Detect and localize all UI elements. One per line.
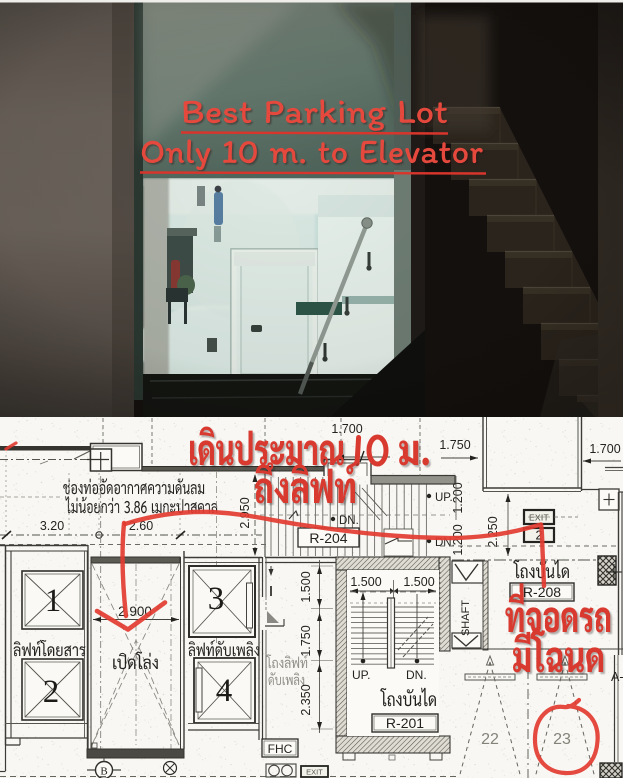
svg-text:R-201: R-201 bbox=[386, 715, 424, 731]
svg-text:A-: A- bbox=[611, 670, 623, 684]
svg-text:23: 23 bbox=[553, 731, 571, 748]
svg-text:1.700: 1.700 bbox=[331, 422, 362, 436]
svg-text:1.500: 1.500 bbox=[350, 575, 381, 589]
svg-text:1.700: 1.700 bbox=[589, 442, 620, 456]
svg-text:3.20: 3.20 bbox=[40, 519, 64, 533]
svg-text:22: 22 bbox=[481, 731, 499, 748]
svg-text:EXIT: EXIT bbox=[529, 513, 549, 523]
svg-text:DN.: DN. bbox=[339, 515, 359, 527]
svg-text:1.500: 1.500 bbox=[403, 575, 434, 589]
svg-text:SHAFT: SHAFT bbox=[460, 600, 472, 636]
svg-text:1.500: 1.500 bbox=[299, 571, 313, 602]
svg-text:1: 1 bbox=[45, 583, 62, 619]
svg-text:2.250: 2.250 bbox=[486, 516, 500, 547]
svg-text:3: 3 bbox=[208, 581, 225, 617]
svg-text:EXIT: EXIT bbox=[306, 768, 323, 777]
svg-text:2: 2 bbox=[43, 674, 60, 710]
svg-text:1.200: 1.200 bbox=[451, 482, 465, 513]
svg-text:B: B bbox=[100, 766, 107, 778]
svg-text:2.350: 2.350 bbox=[299, 684, 313, 715]
svg-text:FHC: FHC bbox=[268, 742, 293, 756]
svg-text:DN.: DN. bbox=[406, 668, 427, 682]
svg-text:1.750: 1.750 bbox=[439, 438, 470, 452]
svg-text:1.750: 1.750 bbox=[299, 625, 313, 656]
svg-text:4: 4 bbox=[216, 673, 233, 709]
svg-text:UP.: UP. bbox=[352, 668, 370, 682]
